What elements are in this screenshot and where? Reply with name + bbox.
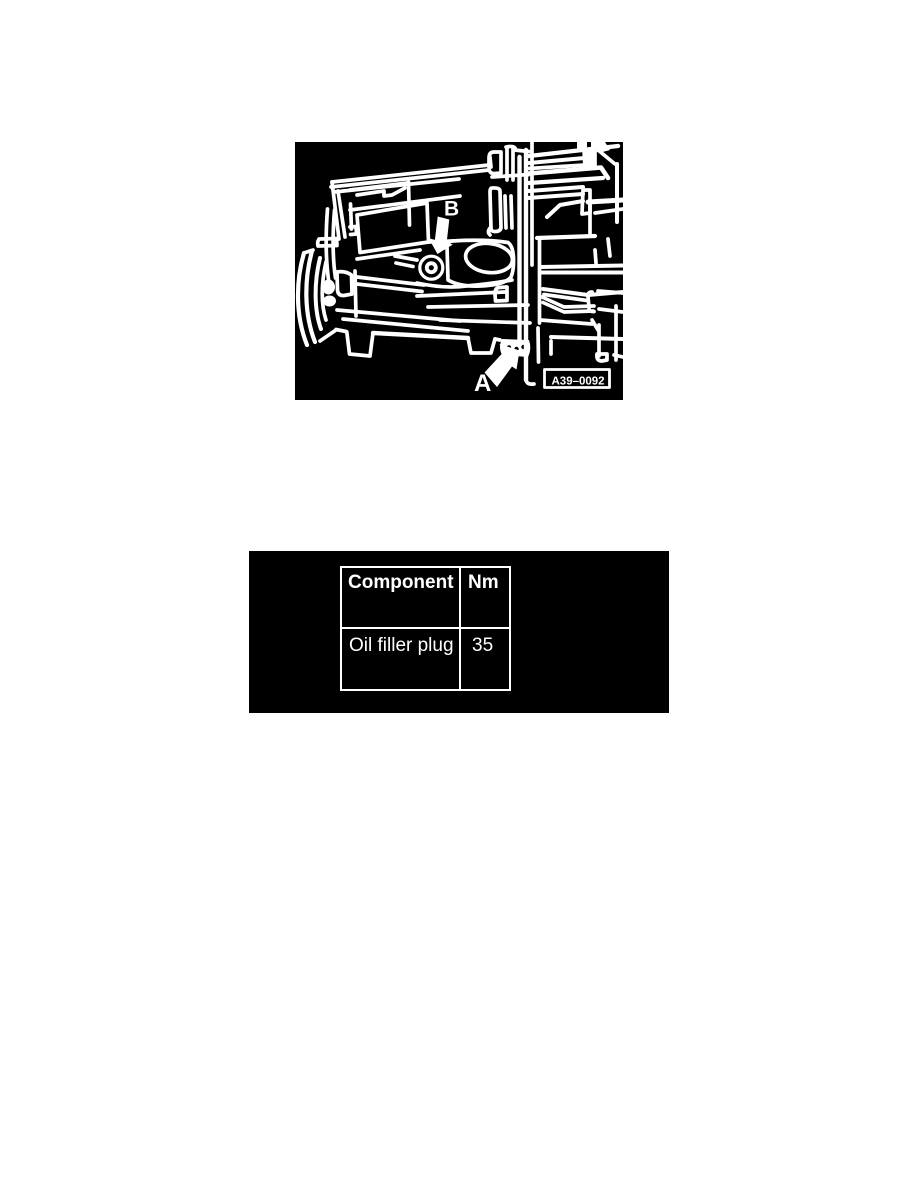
svg-text:A39–0092: A39–0092 bbox=[551, 376, 604, 388]
svg-text:A: A bbox=[474, 370, 491, 397]
svg-text:B: B bbox=[444, 198, 459, 221]
